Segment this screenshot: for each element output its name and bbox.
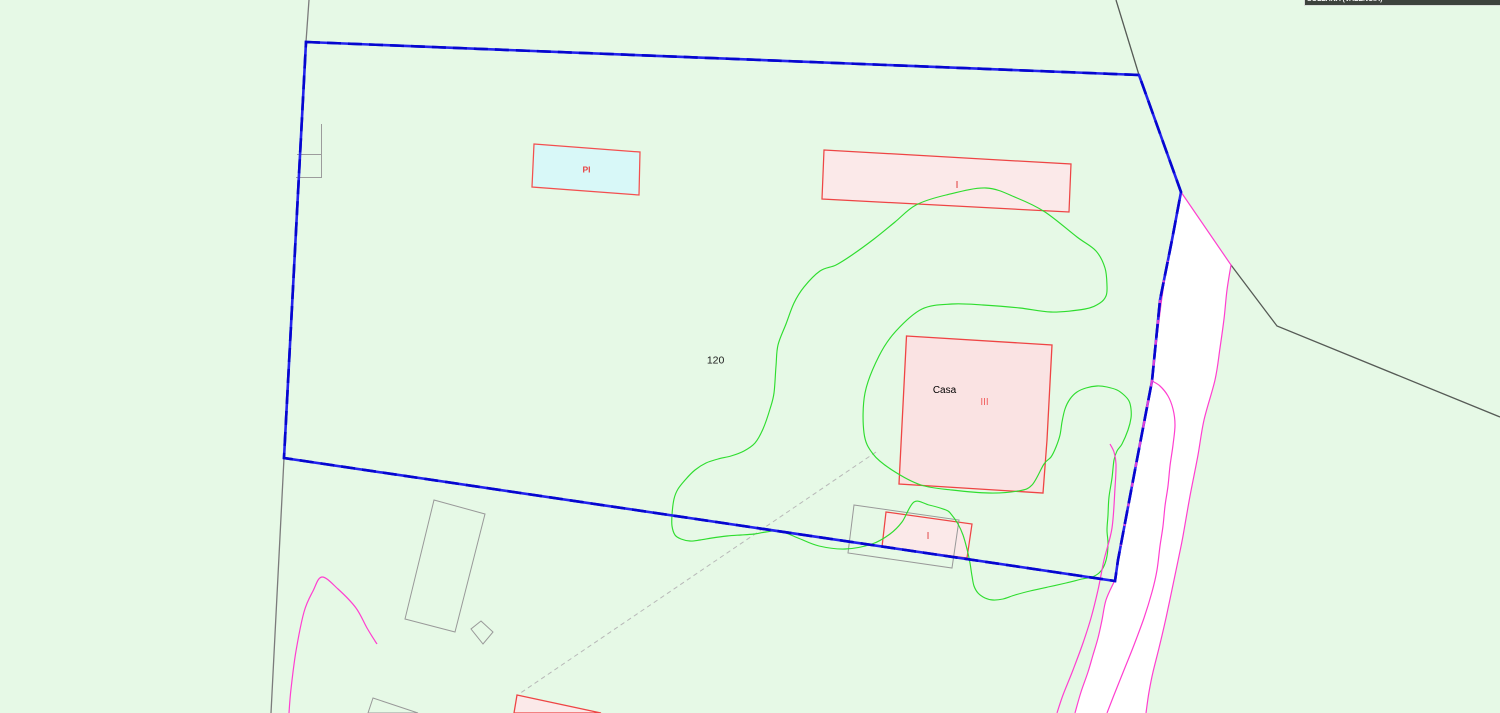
- svg-text:I: I: [956, 180, 959, 191]
- svg-text:III: III: [980, 397, 988, 408]
- svg-text:I: I: [927, 531, 930, 542]
- svg-text:120: 120: [707, 354, 725, 366]
- svg-text:Casa: Casa: [933, 385, 957, 396]
- svg-text:PI: PI: [582, 165, 590, 175]
